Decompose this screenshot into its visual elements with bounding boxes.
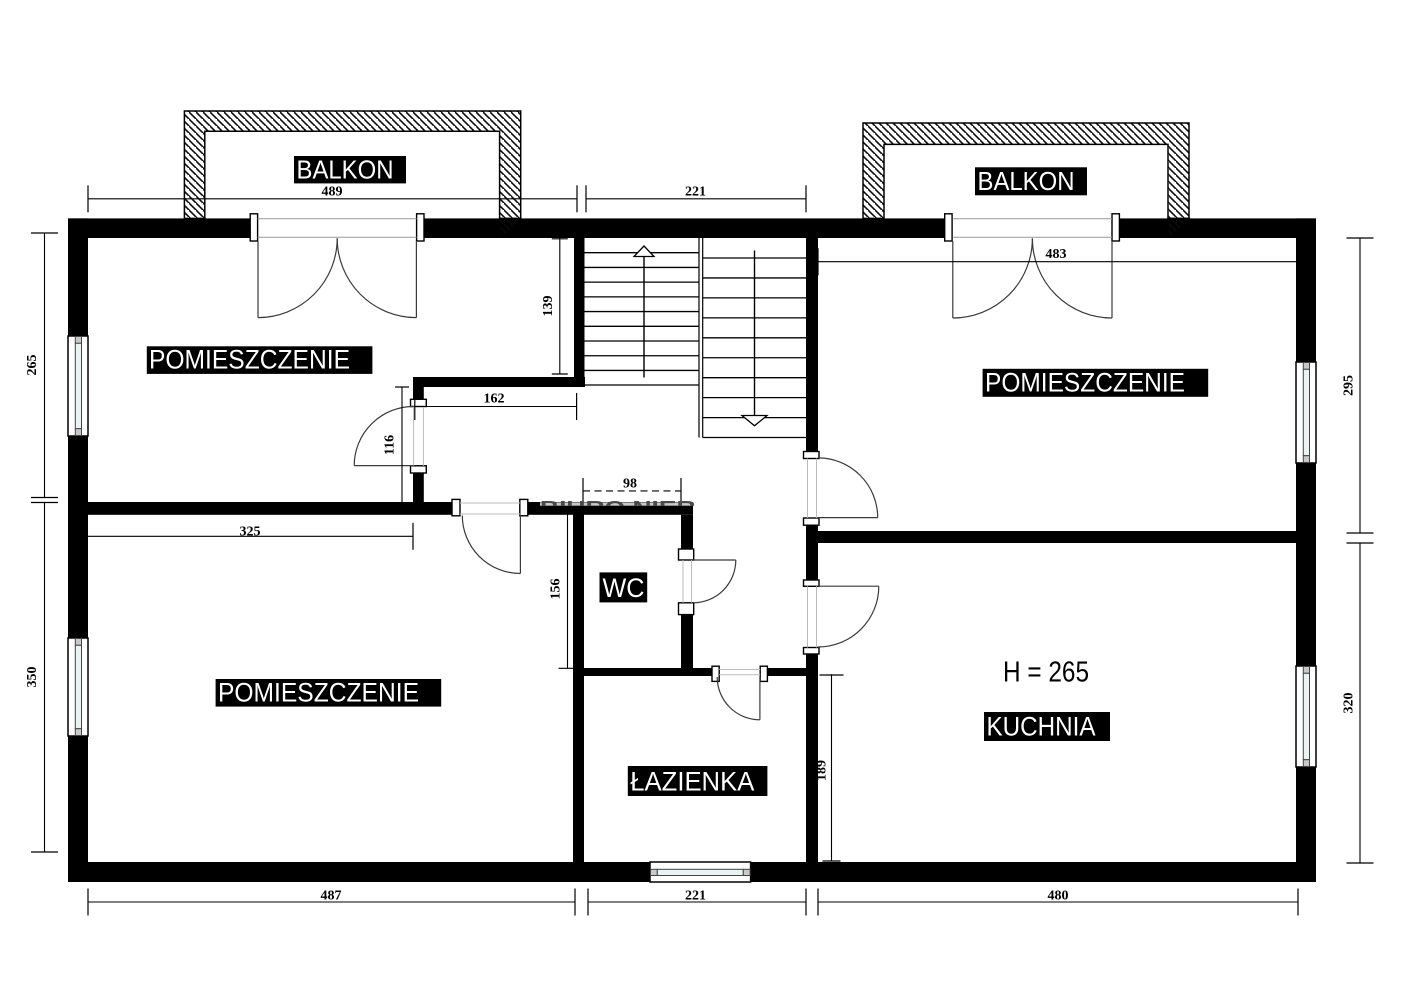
svg-text:483: 483 [1046,247,1067,262]
svg-text:265: 265 [25,355,40,376]
svg-text:295: 295 [1342,375,1357,396]
svg-text:221: 221 [685,889,706,904]
svg-text:156: 156 [549,579,564,600]
svg-text:116: 116 [383,435,398,455]
svg-text:325: 325 [240,524,261,539]
svg-text:POMIESZCZENIE: POMIESZCZENIE [985,367,1185,397]
svg-text:189: 189 [815,760,830,781]
svg-text:320: 320 [1342,693,1357,714]
svg-text:BALKON: BALKON [297,155,394,185]
svg-text:ŁAZIENKA: ŁAZIENKA [630,766,754,796]
svg-text:KUCHNIA: KUCHNIA [987,712,1096,742]
svg-text:487: 487 [321,889,342,904]
svg-text:480: 480 [1048,889,1069,904]
svg-text:162: 162 [484,392,505,407]
svg-text:221: 221 [685,185,706,200]
svg-text:98: 98 [623,477,637,492]
svg-text:BALKON: BALKON [978,166,1075,196]
svg-text:POMIESZCZENIE: POMIESZCZENIE [218,677,419,707]
svg-text:489: 489 [322,185,343,200]
svg-text:WC: WC [603,573,645,603]
svg-text:H = 265: H = 265 [1003,657,1089,689]
svg-text:350: 350 [25,667,40,688]
svg-text:POMIESZCZENIE: POMIESZCZENIE [149,345,350,375]
svg-text:139: 139 [541,296,556,317]
